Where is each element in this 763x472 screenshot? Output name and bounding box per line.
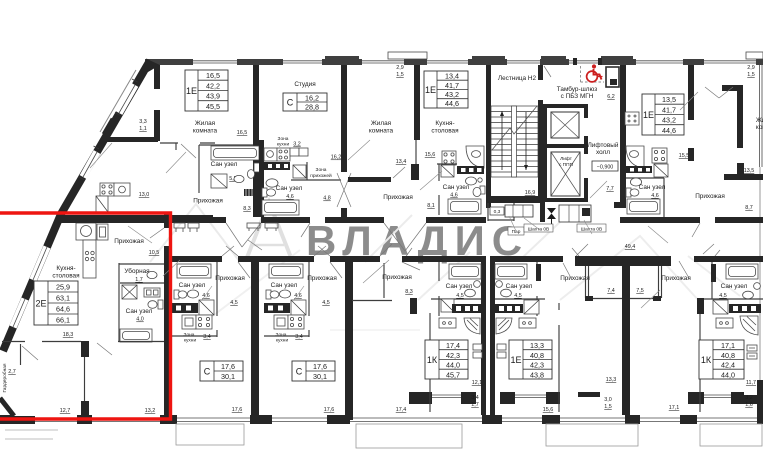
- svg-text:17,4: 17,4: [396, 407, 407, 413]
- svg-text:3,0: 3,0: [604, 397, 612, 403]
- svg-text:Прихожая: Прихожая: [382, 274, 412, 281]
- svg-text:столовая: столовая: [52, 273, 80, 280]
- svg-text:11,7: 11,7: [746, 380, 756, 386]
- svg-text:Сан узел: Сан узел: [276, 185, 303, 192]
- svg-text:1Е: 1Е: [643, 110, 654, 120]
- svg-text:Зона: Зона: [316, 167, 327, 173]
- svg-text:17,1: 17,1: [669, 405, 680, 411]
- svg-text:13,5: 13,5: [662, 95, 676, 104]
- svg-text:2,9: 2,9: [747, 65, 755, 71]
- svg-text:16,9: 16,9: [525, 190, 536, 196]
- svg-text:1,6: 1,6: [745, 402, 753, 408]
- svg-text:13,0: 13,0: [139, 192, 150, 198]
- svg-text:3,4: 3,4: [295, 334, 303, 340]
- svg-text:Тамбур-шлюз: Тамбур-шлюз: [557, 85, 597, 93]
- svg-text:40,8: 40,8: [530, 351, 544, 360]
- svg-text:1,7: 1,7: [471, 402, 479, 408]
- svg-text:Гардеробная: Гардеробная: [2, 363, 8, 392]
- svg-text:Прихожая: Прихожая: [193, 198, 223, 205]
- svg-text:41,7: 41,7: [662, 105, 676, 114]
- svg-text:42,3: 42,3: [446, 351, 460, 360]
- svg-text:44,0: 44,0: [721, 370, 735, 379]
- svg-text:8,1: 8,1: [427, 203, 435, 209]
- svg-text:С: С: [287, 98, 294, 108]
- svg-text:Лестница Н2: Лестница Н2: [498, 75, 537, 82]
- svg-text:1Е: 1Е: [510, 355, 521, 365]
- svg-text:17,6: 17,6: [232, 407, 243, 413]
- svg-text:1Е: 1Е: [425, 85, 436, 95]
- svg-text:45,5: 45,5: [206, 102, 220, 111]
- svg-text:2,9: 2,9: [396, 65, 404, 71]
- svg-text:4,5: 4,5: [514, 293, 522, 299]
- svg-text:25,9: 25,9: [56, 283, 70, 292]
- svg-text:1,7: 1,7: [135, 277, 143, 283]
- svg-text:13,2: 13,2: [145, 408, 156, 414]
- svg-text:Студия: Студия: [294, 81, 316, 88]
- svg-text:8,7: 8,7: [745, 205, 753, 211]
- svg-text:17,4: 17,4: [446, 341, 460, 350]
- svg-text:комната: комната: [369, 128, 394, 135]
- svg-text:4,6: 4,6: [651, 193, 659, 199]
- svg-text:17,1: 17,1: [721, 341, 735, 350]
- svg-text:кухни: кухни: [276, 339, 289, 344]
- svg-text:4,6: 4,6: [450, 193, 458, 199]
- svg-text:Прихожая: Прихожая: [114, 238, 144, 245]
- svg-text:Уборная: Уборная: [124, 267, 150, 275]
- svg-text:0,3: 0,3: [494, 209, 501, 215]
- svg-text:8,3: 8,3: [243, 206, 251, 212]
- svg-text:16,2: 16,2: [305, 93, 319, 102]
- svg-text:40,8: 40,8: [721, 351, 735, 360]
- svg-text:10,5: 10,5: [149, 250, 160, 256]
- svg-text:42,2: 42,2: [206, 81, 220, 90]
- svg-text:Сан узел: Сан узел: [443, 184, 470, 191]
- svg-text:66,1: 66,1: [56, 316, 70, 325]
- svg-text:Жилая: Жилая: [371, 120, 392, 127]
- svg-text:44,6: 44,6: [445, 99, 459, 108]
- svg-text:Сан узел: Сан узел: [211, 161, 238, 168]
- svg-text:4,5: 4,5: [456, 293, 464, 299]
- svg-text:17,6: 17,6: [324, 407, 335, 413]
- svg-text:1,5: 1,5: [604, 404, 612, 410]
- svg-text:Жилая: Жилая: [195, 120, 216, 127]
- svg-text:17,6: 17,6: [313, 362, 327, 371]
- svg-text:28,8: 28,8: [305, 103, 319, 112]
- svg-text:12,1: 12,1: [472, 380, 483, 386]
- svg-text:Прихожая: Прихожая: [307, 275, 337, 282]
- svg-text:4,5: 4,5: [719, 293, 727, 299]
- svg-text:43,8: 43,8: [530, 370, 544, 379]
- svg-text:13,3: 13,3: [606, 377, 617, 383]
- svg-text:Лифтовый: Лифтовый: [588, 141, 619, 149]
- svg-text:Сан узел: Сан узел: [506, 283, 533, 290]
- svg-text:Сан узел: Сан узел: [639, 184, 666, 191]
- svg-text:43,2: 43,2: [445, 90, 459, 99]
- svg-text:7,7: 7,7: [606, 186, 614, 192]
- svg-text:7,4: 7,4: [607, 288, 615, 294]
- svg-text:прихожей: прихожей: [310, 172, 332, 179]
- svg-text:Сан узел: Сан узел: [721, 283, 748, 290]
- svg-text:3,4: 3,4: [471, 395, 479, 401]
- svg-text:4,5: 4,5: [322, 300, 330, 306]
- svg-text:Зона: Зона: [276, 332, 287, 338]
- svg-text:комната: комната: [756, 124, 763, 131]
- svg-text:30,1: 30,1: [313, 372, 327, 381]
- svg-text:С: С: [204, 367, 211, 377]
- svg-text:30,1: 30,1: [221, 372, 235, 381]
- svg-text:1,5: 1,5: [396, 72, 404, 78]
- svg-text:17,6: 17,6: [221, 362, 235, 371]
- svg-text:6,2: 6,2: [607, 94, 615, 100]
- svg-text:комната: комната: [193, 128, 218, 135]
- svg-text:15,6: 15,6: [543, 407, 554, 413]
- svg-text:1Е: 1Е: [186, 86, 197, 96]
- svg-text:43,9: 43,9: [206, 92, 220, 101]
- svg-text:Зона: Зона: [184, 332, 195, 338]
- svg-text:1К: 1К: [701, 355, 712, 365]
- svg-text:Прихожая: Прихожая: [215, 275, 245, 282]
- svg-text:13,4: 13,4: [445, 72, 459, 81]
- svg-text:столовая: столовая: [431, 128, 459, 135]
- svg-text:44,6: 44,6: [662, 126, 676, 135]
- svg-text:18,3: 18,3: [63, 332, 74, 338]
- svg-text:45,7: 45,7: [446, 370, 460, 379]
- svg-text:41,7: 41,7: [445, 81, 459, 90]
- svg-text:холл: холл: [596, 149, 610, 156]
- svg-text:−0,900: −0,900: [597, 165, 614, 171]
- svg-text:С: С: [296, 367, 303, 377]
- svg-text:16,2: 16,2: [331, 155, 342, 161]
- svg-text:44,0: 44,0: [446, 361, 460, 370]
- svg-text:Пар: Пар: [512, 229, 521, 235]
- svg-text:2,7: 2,7: [8, 369, 16, 375]
- svg-text:49,4: 49,4: [625, 244, 636, 250]
- svg-text:42,3: 42,3: [530, 361, 544, 370]
- svg-text:4,6: 4,6: [286, 194, 294, 200]
- svg-text:7,5: 7,5: [636, 288, 644, 294]
- svg-text:13,4: 13,4: [396, 159, 407, 165]
- svg-text:4,8: 4,8: [323, 196, 331, 202]
- svg-text:15,5: 15,5: [679, 153, 690, 159]
- svg-text:42,4: 42,4: [721, 361, 735, 370]
- svg-text:кухни: кухни: [277, 143, 290, 148]
- svg-text:с ПБЗ МГН: с ПБЗ МГН: [561, 93, 594, 100]
- svg-text:Сан узел: Сан узел: [179, 282, 206, 289]
- svg-text:4,0: 4,0: [136, 317, 144, 323]
- svg-text:Жилая: Жилая: [756, 117, 763, 124]
- svg-text:1К: 1К: [427, 355, 438, 365]
- svg-text:64,6: 64,6: [56, 305, 70, 314]
- svg-text:3,2: 3,2: [293, 142, 301, 148]
- svg-text:2Е: 2Е: [35, 299, 46, 309]
- svg-text:3,4: 3,4: [203, 334, 211, 340]
- svg-text:3,2: 3,2: [745, 395, 753, 401]
- svg-text:кухни: кухни: [184, 339, 197, 344]
- svg-text:4,5: 4,5: [230, 300, 238, 306]
- svg-text:Шахта 0В: Шахта 0В: [581, 227, 602, 233]
- svg-text:3,3: 3,3: [139, 119, 147, 125]
- svg-text:с ППП: с ППП: [559, 162, 574, 168]
- svg-text:Кухня-: Кухня-: [435, 120, 454, 127]
- svg-text:63,1: 63,1: [56, 294, 70, 303]
- svg-text:16,5: 16,5: [206, 71, 220, 80]
- svg-text:Кухня-: Кухня-: [56, 265, 75, 272]
- svg-text:13,3: 13,3: [530, 341, 544, 350]
- svg-text:Шахта 0В: Шахта 0В: [528, 227, 549, 233]
- svg-text:16,5: 16,5: [237, 130, 248, 136]
- svg-text:12,7: 12,7: [60, 408, 71, 414]
- svg-text:Сан узел: Сан узел: [126, 308, 153, 315]
- svg-text:Зона: Зона: [278, 136, 289, 142]
- svg-text:1,5: 1,5: [747, 72, 755, 78]
- svg-text:1,1: 1,1: [139, 126, 147, 132]
- svg-text:Прихожая: Прихожая: [695, 193, 725, 200]
- svg-text:Прихожая: Прихожая: [383, 194, 413, 201]
- svg-text:Лифт: Лифт: [560, 156, 573, 162]
- svg-text:Прихожая: Прихожая: [661, 275, 691, 282]
- svg-text:15,6: 15,6: [425, 152, 436, 158]
- svg-text:8,3: 8,3: [405, 289, 413, 295]
- svg-text:43,2: 43,2: [662, 116, 676, 125]
- svg-text:Сан узел: Сан узел: [271, 282, 298, 289]
- svg-text:13,5: 13,5: [744, 168, 755, 174]
